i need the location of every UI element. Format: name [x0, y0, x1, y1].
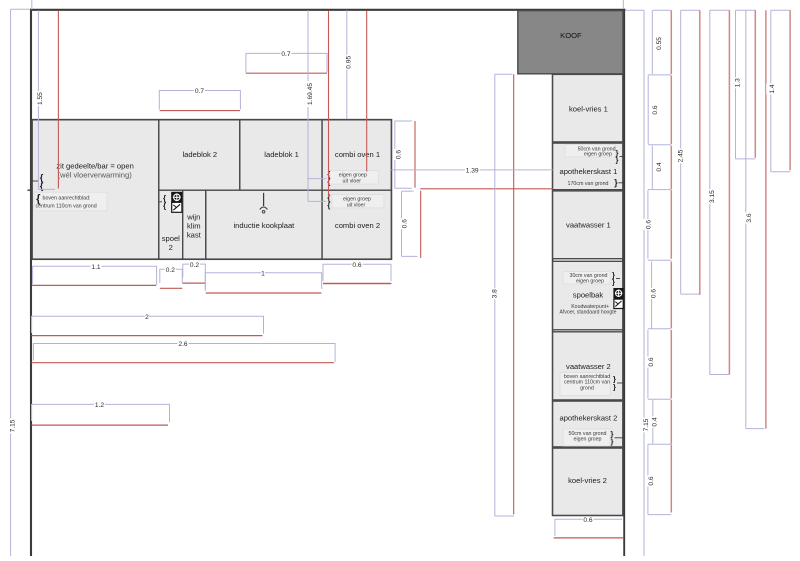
svg-text:1.55: 1.55 — [37, 92, 44, 105]
svg-text:0.4: 0.4 — [656, 162, 663, 171]
svg-text:vaatwasser 2: vaatwasser 2 — [566, 362, 611, 371]
svg-text:0.6: 0.6 — [650, 289, 657, 298]
svg-text:2: 2 — [169, 243, 173, 252]
svg-text:0.6: 0.6 — [648, 476, 655, 485]
svg-text:1.39: 1.39 — [466, 167, 479, 174]
svg-text:grond: grond — [580, 385, 594, 391]
svg-text:1.2: 1.2 — [95, 402, 104, 409]
svg-text:(wél vloerverwarming): (wél vloerverwarming) — [57, 171, 132, 180]
svg-text:1.69.45: 1.69.45 — [307, 83, 314, 105]
svg-text:0.6: 0.6 — [395, 150, 402, 159]
svg-text:apothekerskast 1: apothekerskast 1 — [559, 167, 617, 176]
svg-text:0.6: 0.6 — [646, 220, 653, 229]
svg-text:wijn: wijn — [186, 212, 200, 221]
svg-text:7.15: 7.15 — [643, 418, 650, 431]
svg-text:combi oven 2: combi oven 2 — [335, 221, 380, 230]
svg-text:vaatwasser 1: vaatwasser 1 — [566, 221, 611, 230]
svg-text:3.15: 3.15 — [709, 190, 716, 203]
svg-text:0.6: 0.6 — [352, 262, 361, 269]
svg-text:}: } — [614, 178, 618, 188]
svg-text:}: } — [611, 437, 614, 446]
svg-text:kast: kast — [187, 231, 202, 240]
svg-text:}: } — [612, 278, 615, 287]
svg-text:0.2: 0.2 — [166, 267, 175, 274]
svg-text:0.4: 0.4 — [652, 417, 659, 426]
svg-text:1: 1 — [261, 271, 265, 278]
svg-text:2.6: 2.6 — [178, 341, 187, 348]
svg-text:klim: klim — [187, 222, 201, 231]
svg-text:2: 2 — [145, 314, 149, 321]
svg-text:koel-vries 2: koel-vries 2 — [568, 476, 607, 485]
svg-text:koel-vries 1: koel-vries 1 — [569, 105, 608, 114]
svg-text:0.7: 0.7 — [281, 51, 290, 58]
svg-text:Afvoer, standaard hoogte: Afvoer, standaard hoogte — [560, 310, 617, 316]
svg-text:0.6: 0.6 — [652, 105, 659, 114]
svg-text:}: } — [613, 383, 616, 392]
svg-text:{: { — [327, 201, 330, 210]
svg-text:0.95: 0.95 — [346, 56, 353, 69]
svg-text:eigen groep: eigen groep — [574, 437, 602, 443]
svg-text:ladeblok 2: ladeblok 2 — [182, 150, 217, 159]
svg-text:{: { — [163, 201, 166, 210]
svg-text:1.1: 1.1 — [91, 264, 100, 271]
svg-text:spoelbak: spoelbak — [573, 291, 604, 300]
svg-text:KOOF: KOOF — [560, 31, 582, 40]
svg-text:centrum 110cm van grond: centrum 110cm van grond — [36, 203, 97, 209]
svg-text:inductie kookplaat: inductie kookplaat — [234, 221, 296, 230]
svg-text:apothekerskast 2: apothekerskast 2 — [559, 413, 617, 422]
svg-text:1.4: 1.4 — [769, 84, 776, 93]
svg-text:0.7: 0.7 — [195, 88, 204, 95]
svg-text:ladeblok 1: ladeblok 1 — [264, 150, 299, 159]
svg-text:1.3: 1.3 — [735, 78, 742, 87]
svg-text:2.45: 2.45 — [677, 149, 684, 162]
svg-text:zit gedeelte/bar = open: zit gedeelte/bar = open — [56, 161, 133, 170]
svg-text:eigen groep: eigen groep — [584, 152, 612, 158]
svg-text:0.6: 0.6 — [648, 357, 655, 366]
svg-text:0.6: 0.6 — [583, 517, 592, 524]
svg-text:boven aanrechtblad:: boven aanrechtblad: — [43, 196, 91, 202]
svg-text:combi oven 1: combi oven 1 — [335, 150, 380, 159]
svg-text:3.6: 3.6 — [746, 213, 753, 222]
svg-text:7.15: 7.15 — [10, 419, 17, 432]
svg-text:170cm van grond: 170cm van grond — [568, 181, 609, 187]
svg-text:0.2: 0.2 — [190, 262, 199, 269]
svg-text:}: } — [616, 156, 619, 165]
svg-text:uit vloer: uit vloer — [347, 203, 366, 209]
svg-text:spoel: spoel — [162, 234, 180, 243]
svg-text:eigen groep: eigen groep — [576, 278, 604, 284]
svg-text:0.6: 0.6 — [402, 219, 409, 228]
svg-text:uit vloer: uit vloer — [343, 179, 362, 185]
svg-text:3.8: 3.8 — [492, 289, 499, 298]
svg-text:0.55: 0.55 — [656, 37, 663, 50]
